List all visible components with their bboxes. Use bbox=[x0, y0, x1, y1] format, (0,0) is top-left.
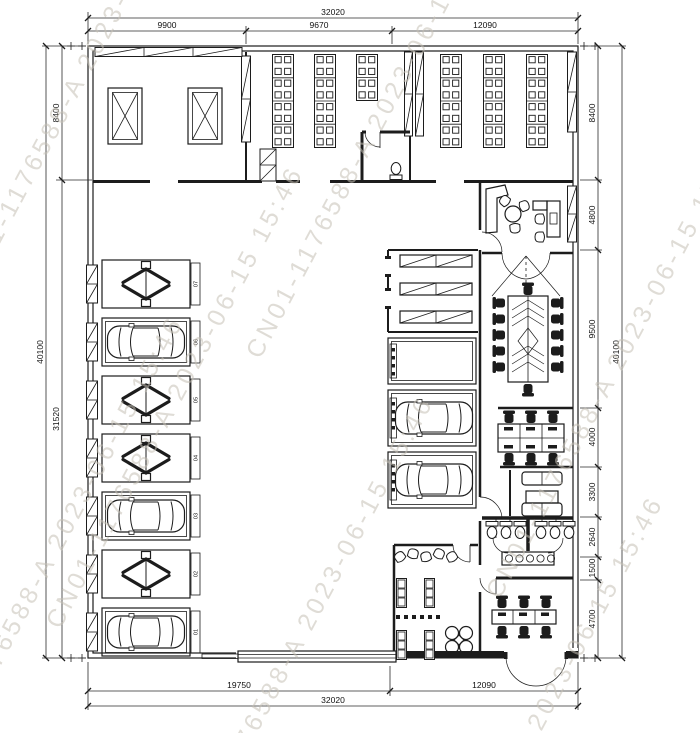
chair-icon bbox=[551, 313, 564, 325]
bay-label: 05 bbox=[194, 397, 200, 403]
chair-icon bbox=[535, 214, 545, 224]
dim-label: 9500 bbox=[587, 319, 597, 338]
dim-label: 12090 bbox=[473, 20, 497, 30]
dim-label: 31520 bbox=[51, 407, 61, 431]
dim-label: 4800 bbox=[587, 205, 597, 224]
dim-label: 12090 bbox=[472, 680, 496, 690]
desk bbox=[547, 201, 560, 237]
chair-icon bbox=[503, 411, 515, 424]
bottom-wall-solid bbox=[398, 651, 504, 659]
corner-desk bbox=[486, 185, 508, 233]
door-arc bbox=[480, 497, 502, 519]
chair-icon bbox=[493, 345, 506, 357]
dimension-bottom: 19750 12090 32020 bbox=[85, 662, 581, 710]
chair-icon bbox=[433, 547, 446, 560]
bay-label: 04 bbox=[194, 455, 200, 461]
toilet-icon bbox=[563, 522, 575, 539]
chair-icon bbox=[445, 550, 458, 563]
chair-icon bbox=[510, 223, 521, 233]
chair-icon bbox=[493, 361, 506, 373]
chair-icon bbox=[498, 194, 512, 208]
workbench-room bbox=[385, 250, 478, 332]
watermark-text: CN01-1176588-A 2023-06-15 15:46 bbox=[41, 161, 310, 633]
chair-icon bbox=[535, 232, 545, 242]
chair-icon bbox=[522, 283, 534, 296]
dim-label: 32020 bbox=[321, 7, 345, 17]
equipment-platform-icon bbox=[188, 88, 222, 144]
bench-icon bbox=[425, 579, 435, 608]
floor-plan-page: 07 06 05 04 bbox=[0, 0, 700, 733]
chair-icon bbox=[547, 411, 559, 424]
parts-room-right bbox=[441, 52, 577, 148]
workbench bbox=[400, 283, 472, 295]
chair-icon bbox=[540, 596, 552, 609]
dim-label: 1500 bbox=[587, 558, 597, 577]
chair-icon bbox=[540, 626, 552, 639]
dim-label: 2640 bbox=[587, 527, 597, 546]
car-icon bbox=[396, 462, 473, 499]
shelf-rack-icon bbox=[273, 55, 294, 148]
door-arc bbox=[482, 232, 502, 252]
workshop-bay: 07 bbox=[87, 260, 201, 308]
service-bay-empty bbox=[388, 338, 476, 384]
chair-icon bbox=[551, 329, 564, 341]
workshop-bay: 01 bbox=[87, 608, 201, 656]
chair-icon bbox=[551, 297, 564, 309]
floor-plan-drawing: 07 06 05 04 bbox=[0, 0, 700, 733]
basin-icon bbox=[537, 555, 544, 562]
dim-label: 40100 bbox=[35, 340, 45, 364]
desk-return bbox=[533, 201, 547, 210]
shelf-rack-icon bbox=[357, 55, 378, 101]
shelf-rack-icon bbox=[315, 55, 336, 148]
two-post-lift-icon bbox=[123, 262, 169, 307]
chair-icon bbox=[493, 297, 506, 309]
shelf-rack-icon bbox=[484, 55, 505, 148]
partition-ab bbox=[242, 52, 251, 180]
chair-icon bbox=[407, 548, 419, 560]
chair-icon bbox=[493, 329, 506, 341]
shelf-rack-icon bbox=[527, 55, 548, 148]
chair-icon bbox=[551, 345, 564, 357]
toilet-icon bbox=[390, 163, 402, 180]
round-table bbox=[505, 206, 521, 222]
dim-label: 3300 bbox=[587, 482, 597, 501]
dimension-top: 32020 9900 9670 12090 bbox=[85, 7, 581, 44]
chair-icon bbox=[522, 384, 534, 397]
bench-icon bbox=[397, 631, 407, 660]
chair-icon bbox=[518, 626, 530, 639]
toilet-icon bbox=[486, 522, 498, 539]
conference-room bbox=[492, 253, 564, 397]
chair-icon bbox=[518, 596, 530, 609]
monitor-icon bbox=[550, 213, 557, 224]
office-room bbox=[482, 185, 577, 253]
bay-label: 07 bbox=[194, 281, 200, 287]
bench-icon bbox=[425, 631, 435, 660]
shelf-rack-icon bbox=[441, 55, 462, 148]
bay-label: 01 bbox=[194, 629, 200, 635]
dim-label: 19750 bbox=[227, 680, 251, 690]
chair-icon bbox=[493, 313, 506, 325]
bay-label: 02 bbox=[194, 571, 200, 577]
workbench bbox=[400, 311, 472, 323]
dim-label: 32020 bbox=[321, 695, 345, 705]
bay-label: 03 bbox=[194, 513, 200, 519]
reception-counter bbox=[492, 610, 556, 624]
chair-icon bbox=[496, 626, 508, 639]
dim-label: 9900 bbox=[158, 20, 177, 30]
chair-icon bbox=[525, 453, 537, 466]
chair-icon bbox=[551, 361, 564, 373]
car-icon bbox=[108, 614, 185, 651]
door-arc bbox=[548, 538, 563, 553]
chair-icon bbox=[420, 551, 432, 563]
workbench bbox=[400, 255, 472, 267]
room-topleft bbox=[95, 48, 242, 145]
two-post-lift-icon bbox=[123, 552, 169, 597]
toilet-icon bbox=[549, 522, 561, 539]
table-items bbox=[396, 615, 440, 619]
bench-icon bbox=[397, 579, 407, 608]
equipment-platform-icon bbox=[108, 88, 142, 144]
waiting-room bbox=[393, 545, 478, 660]
chair-icon bbox=[503, 453, 515, 466]
dim-label: 8400 bbox=[587, 103, 597, 122]
dim-label: 9670 bbox=[310, 20, 329, 30]
chair-icon bbox=[525, 411, 537, 424]
